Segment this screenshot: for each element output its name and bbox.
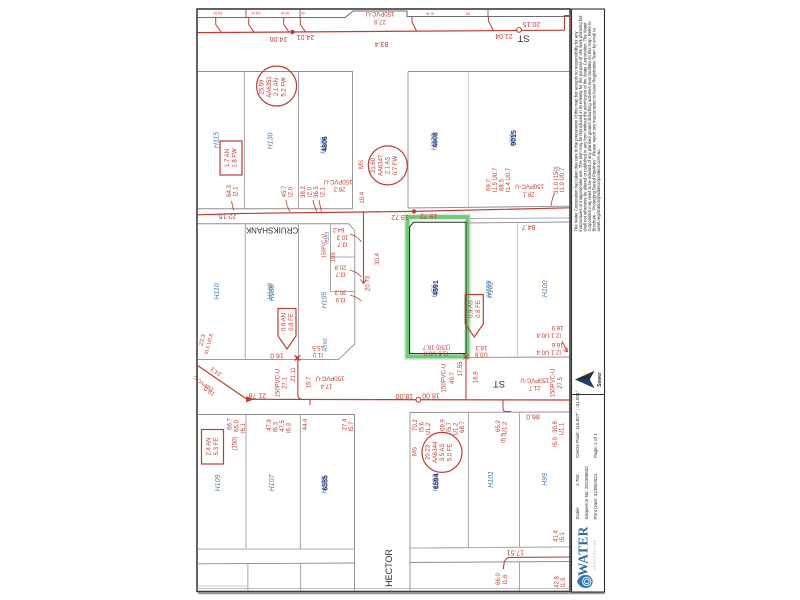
svg-text:U1.2: U1.2 xyxy=(426,422,432,435)
svg-text:I1.9: I1.9 xyxy=(561,577,567,588)
svg-text:I2.0: I2.0 xyxy=(289,186,295,197)
svg-text:I1.6: I1.6 xyxy=(503,574,509,585)
svg-text:86.0: 86.0 xyxy=(526,413,540,420)
svg-text:26.2: 26.2 xyxy=(333,185,345,191)
svg-text:0.6 AN: 0.6 AN xyxy=(282,313,288,331)
svg-text:I1.5 U0.7: I1.5 U0.7 xyxy=(493,167,499,192)
svg-text:(150) 16.7: (150) 16.7 xyxy=(422,343,450,349)
svg-text:27.4: 27.4 xyxy=(342,418,348,430)
svg-text:I2.1: I2.1 xyxy=(321,186,327,197)
svg-text:21.78: 21.78 xyxy=(249,391,267,398)
svg-text:69.7: 69.7 xyxy=(487,179,493,191)
svg-text:Print Date: 31/08/2021: Print Date: 31/08/2021 xyxy=(593,473,598,519)
svg-text:69.9: 69.9 xyxy=(441,419,447,431)
svg-text:4808: 4808 xyxy=(432,132,439,148)
svg-text:66.0: 66.0 xyxy=(496,573,502,585)
svg-text:38.2: 38.2 xyxy=(301,186,307,198)
svg-text:47.5: 47.5 xyxy=(280,420,286,432)
svg-text:H110: H110 xyxy=(214,283,221,299)
svg-text:21.60: 21.60 xyxy=(371,157,377,173)
svg-text:20.15: 20.15 xyxy=(523,20,541,27)
svg-text:18.00: 18.00 xyxy=(396,392,414,399)
svg-text:20.8: 20.8 xyxy=(334,263,346,269)
svg-text:16.9: 16.9 xyxy=(551,324,563,330)
svg-text:I5.1: I5.1 xyxy=(560,531,566,542)
svg-text:0.9 AS: 0.9 AS xyxy=(469,300,475,318)
svg-text:H188: H188 xyxy=(269,285,276,302)
svg-text:H101: H101 xyxy=(488,471,495,488)
svg-text:U1.1: U1.1 xyxy=(560,422,566,435)
svg-text:4591: 4591 xyxy=(433,280,440,296)
svg-text:I3.7: I3.7 xyxy=(337,240,348,246)
svg-text:I6.3: I6.3 xyxy=(287,422,293,433)
svg-text:150PVC-U: 150PVC-U xyxy=(324,178,353,184)
svg-text:I6 I6: I6 I6 xyxy=(280,11,289,16)
svg-text:1.7 AN: 1.7 AN xyxy=(225,149,231,167)
svg-text:(150): (150) xyxy=(232,436,238,450)
svg-text:H130: H130 xyxy=(268,133,275,150)
svg-text:65.0: 65.0 xyxy=(235,420,241,432)
svg-text:42.8: 42.8 xyxy=(554,576,560,588)
svg-text:AA6347: AA6347 xyxy=(378,154,384,176)
svg-text:I2.1 U0.4: I2.1 U0.4 xyxy=(536,349,561,355)
svg-text:64.3: 64.3 xyxy=(227,185,233,197)
svg-text:21.04: 21.04 xyxy=(495,32,513,39)
svg-text:H100: H100 xyxy=(542,280,549,297)
svg-text:5.3 FE: 5.3 FE xyxy=(214,438,220,456)
svg-text:45.7: 45.7 xyxy=(282,185,288,197)
svg-text:H107: H107 xyxy=(269,474,276,492)
svg-text:68.5: 68.5 xyxy=(500,179,506,191)
svg-text:I2.0: I2.0 xyxy=(308,186,314,197)
svg-text:27.1: 27.1 xyxy=(283,377,289,389)
svg-text:17.4: 17.4 xyxy=(320,382,332,388)
svg-text:16.6: 16.6 xyxy=(551,341,563,347)
svg-text:AA6351: AA6351 xyxy=(267,76,273,98)
svg-text:20.23: 20.23 xyxy=(426,444,432,460)
svg-text:I1.0: I1.0 xyxy=(312,351,323,357)
svg-text:H183: H183 xyxy=(325,232,331,244)
svg-text:I1.9 U0.7: I1.9 U0.7 xyxy=(560,167,566,192)
svg-text:44.4: 44.4 xyxy=(303,418,309,430)
svg-text:0.8 FE: 0.8 FE xyxy=(289,313,295,331)
svg-text:150PVC-U: 150PVC-U xyxy=(316,374,345,380)
svg-text:47.9: 47.9 xyxy=(267,419,273,431)
svg-text:Page: 1 of 1: Page: 1 of 1 xyxy=(593,433,598,458)
svg-text:9015: 9015 xyxy=(511,130,518,146)
svg-text:65.2: 65.2 xyxy=(496,420,502,432)
svg-text:CRUIKSHANK: CRUIKSHANK xyxy=(245,226,298,235)
svg-text:U0.8: U0.8 xyxy=(474,350,487,356)
svg-text:HECTOR: HECTOR xyxy=(384,549,394,587)
svg-text:150PVC-U: 150PVC-U xyxy=(551,369,557,398)
svg-text:21.11: 21.11 xyxy=(291,367,297,382)
svg-text:U1.2: U1.2 xyxy=(503,421,509,434)
svg-text:70.2: 70.2 xyxy=(413,419,419,431)
svg-text:MS: MS xyxy=(359,160,365,169)
svg-text:20.73: 20.73 xyxy=(365,275,371,291)
svg-text:24 I6: 24 I6 xyxy=(213,11,223,16)
svg-text:17.55: 17.55 xyxy=(458,361,464,377)
svg-text:36.5: 36.5 xyxy=(314,186,320,198)
svg-text:0.8 FE: 0.8 FE xyxy=(476,300,482,318)
svg-text:18.00: 18.00 xyxy=(422,392,440,399)
svg-text:ST: ST xyxy=(517,32,529,43)
svg-text:I5.5: I5.5 xyxy=(502,432,508,443)
svg-text:I5.0: I5.0 xyxy=(553,436,559,447)
svg-text:1.8 FW: 1.8 FW xyxy=(233,148,239,168)
svg-text:109: 109 xyxy=(331,252,337,263)
svg-text:I2.1 U0.4: I2.1 U0.4 xyxy=(536,332,561,338)
svg-text:64.2: 64.2 xyxy=(332,226,344,232)
svg-text:19.4: 19.4 xyxy=(360,191,366,203)
svg-text:I1.5 U0.8: I1.5 U0.8 xyxy=(423,349,448,355)
svg-text:U1.2: U1.2 xyxy=(454,422,460,435)
svg-text:6555: 6555 xyxy=(323,475,330,491)
svg-text:84.7: 84.7 xyxy=(522,223,536,230)
svg-text:150PVC-U: 150PVC-U xyxy=(442,364,448,393)
svg-text:21.7: 21.7 xyxy=(528,384,540,390)
svg-text:WATER: WATER xyxy=(575,526,590,576)
svg-text:Centre Point: 115.827° , -31.: Centre Point: 115.827° , -31.904° xyxy=(575,390,580,458)
svg-text:28.1: 28.1 xyxy=(522,190,534,196)
svg-text:I6.3: I6.3 xyxy=(274,421,280,432)
svg-text:ST: ST xyxy=(493,378,505,389)
svg-text:24.01: 24.01 xyxy=(297,33,315,40)
svg-text:Scale:: Scale: xyxy=(575,507,580,520)
svg-text:Sewer: Sewer xyxy=(597,372,603,387)
svg-text:4806: 4806 xyxy=(322,136,329,152)
svg-text:I6.1: I6.1 xyxy=(241,422,247,433)
svg-text:30.4: 30.4 xyxy=(375,253,381,265)
svg-text:I3.9: I3.9 xyxy=(335,296,346,302)
svg-text:H99: H99 xyxy=(542,473,549,486)
svg-text:66.7: 66.7 xyxy=(228,418,234,430)
svg-text:15.7: 15.7 xyxy=(307,376,313,388)
svg-text:2I I6: 2I I6 xyxy=(425,11,434,16)
svg-text:19.72: 19.72 xyxy=(391,213,409,220)
svg-text:68.7: 68.7 xyxy=(460,421,466,433)
svg-text:16.9: 16.9 xyxy=(474,371,480,383)
svg-text:I5.6: I5.6 xyxy=(420,421,426,432)
svg-text:I2.1: I2.1 xyxy=(234,186,240,197)
svg-text:24 I6: 24 I6 xyxy=(251,11,261,16)
svg-text:19.72: 19.72 xyxy=(420,212,438,219)
svg-text:I1.4 U0.7: I1.4 U0.7 xyxy=(506,167,512,192)
svg-text:H115: H115 xyxy=(213,132,220,148)
svg-text:10.3: 10.3 xyxy=(336,233,348,239)
svg-text:17.51: 17.51 xyxy=(507,549,525,556)
svg-text:H169: H169 xyxy=(486,280,493,297)
svg-text:83.4: 83.4 xyxy=(375,40,389,47)
svg-text:30.3: 30.3 xyxy=(334,289,346,295)
svg-text:2.4 AN: 2.4 AN xyxy=(207,437,213,455)
svg-text:0.7 FW: 0.7 FW xyxy=(393,155,399,175)
svg-text:H109: H109 xyxy=(215,475,222,492)
svg-text:6594: 6594 xyxy=(434,473,441,489)
svg-text:I3.7: I3.7 xyxy=(335,271,346,277)
svg-text:150PVC-U: 150PVC-U xyxy=(276,369,282,398)
svg-text:150PVC-U: 150PVC-U xyxy=(366,10,395,16)
svg-text:3.5 AS: 3.5 AS xyxy=(440,444,446,462)
svg-text:24.06: 24.06 xyxy=(270,35,288,42)
svg-text:C O R P O R A T I O N: C O R P O R A T I O N xyxy=(593,540,597,570)
svg-text:16.0: 16.0 xyxy=(270,352,284,359)
svg-text:5.0 FE: 5.0 FE xyxy=(447,444,453,462)
svg-text:2.1 AS: 2.1 AS xyxy=(386,157,392,175)
svg-text:5.2 FW: 5.2 FW xyxy=(282,77,288,97)
svg-text:27.9: 27.9 xyxy=(374,18,386,24)
svg-text:30.8: 30.8 xyxy=(553,421,559,433)
svg-text:MS: MS xyxy=(412,447,418,456)
svg-text:41.4: 41.4 xyxy=(553,530,559,542)
svg-text:27.5: 27.5 xyxy=(558,377,564,389)
svg-text:H593: H593 xyxy=(323,337,329,351)
svg-text:25.59: 25.59 xyxy=(260,79,266,95)
svg-text:AA6344: AA6344 xyxy=(433,441,439,463)
svg-text:2.1 AN: 2.1 AN xyxy=(274,78,280,96)
svg-text:Sequence No: 202398632: Sequence No: 202398632 xyxy=(584,466,589,520)
svg-text:H195: H195 xyxy=(322,292,329,309)
svg-text:150PVC-U: 150PVC-U xyxy=(520,376,549,382)
svg-text:1:750: 1:750 xyxy=(575,474,580,486)
svg-text:asset.registration@watercorpor: asset.registration@watercorporation.com.… xyxy=(596,149,601,231)
svg-text:22.15: 22.15 xyxy=(219,212,237,219)
svg-text:I5.7: I5.7 xyxy=(447,421,453,432)
svg-text:49.7: 49.7 xyxy=(450,372,456,384)
svg-text:20: 20 xyxy=(465,11,470,16)
svg-text:150PVC-U: 150PVC-U xyxy=(515,183,544,189)
svg-text:16.3: 16.3 xyxy=(475,344,487,350)
